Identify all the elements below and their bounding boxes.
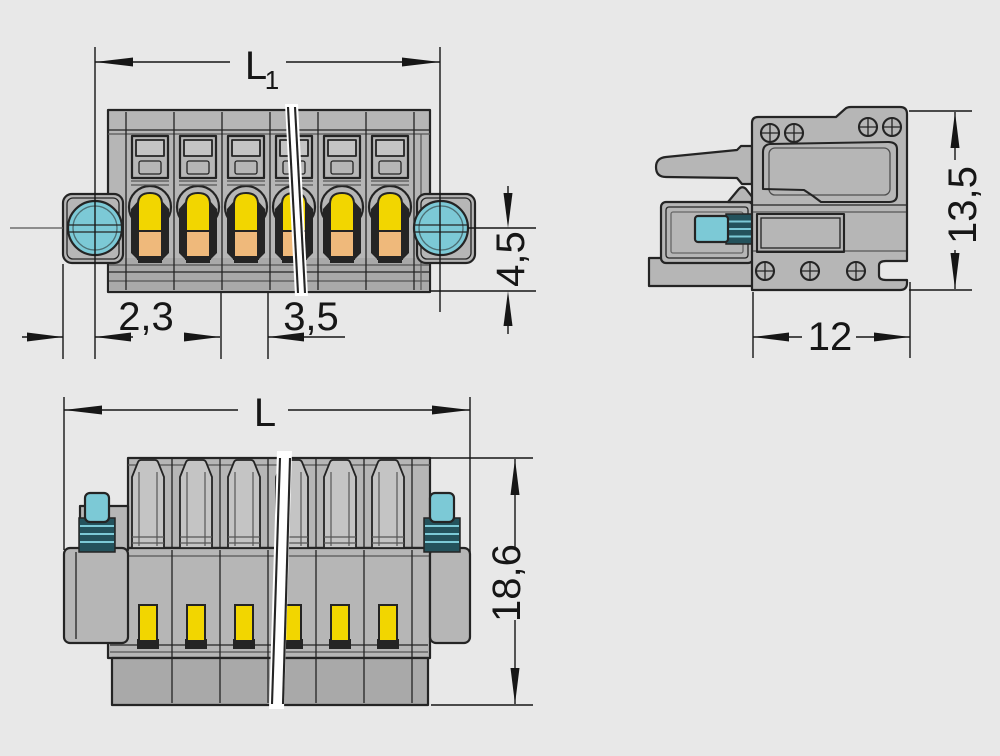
dim-13-5-label: 13,5 — [941, 166, 985, 244]
pin-housing — [132, 460, 164, 548]
arrow-right-icon — [27, 333, 63, 342]
clamp-jaw — [210, 201, 217, 260]
clamp-jaw — [179, 201, 186, 260]
dim-18-6-label: 18,6 — [485, 544, 529, 622]
dim-l1-subscript: 1 — [265, 65, 279, 95]
arrow-down-icon — [511, 668, 520, 704]
dim-13-5: 13,5 — [909, 111, 985, 290]
clamping-screw-side — [695, 214, 754, 244]
dim-l-label: L — [254, 391, 276, 435]
arrow-up-icon — [951, 112, 960, 148]
bottom-view: L 18,6 — [64, 391, 533, 709]
arrow-right-icon — [184, 333, 220, 342]
push-button — [376, 140, 404, 156]
dim-2-3-label: 2,3 — [118, 295, 174, 339]
cage-bottom — [330, 256, 354, 263]
clamp-jaw — [162, 201, 169, 260]
clamp-spring — [138, 229, 162, 259]
pin-housing — [372, 460, 404, 548]
clamp-jaw — [131, 201, 138, 260]
wire-lever — [378, 193, 402, 231]
side-view: 13,5 12 — [649, 107, 985, 359]
fixing-screw-right — [414, 201, 468, 255]
fixing-flange-right — [414, 194, 475, 263]
cage-bottom — [234, 256, 258, 263]
clamp-jaw — [275, 201, 282, 260]
housing-body — [752, 107, 907, 290]
cage-bottom — [186, 256, 210, 263]
terminal-pole — [225, 136, 267, 263]
pin-housing — [180, 460, 212, 548]
contact-window — [139, 605, 157, 641]
contact-window — [379, 605, 397, 641]
terminal-pole — [129, 136, 171, 263]
cage-bottom — [138, 256, 162, 263]
arrow-left-icon — [753, 333, 789, 342]
clamp-jaw — [227, 201, 234, 260]
screw-cross-icon — [859, 118, 878, 137]
front-view: L 1 2,3 3,5 — [10, 44, 536, 359]
push-button — [328, 140, 356, 156]
clamp-jaw — [371, 201, 378, 260]
dim-4-5-label: 4,5 — [489, 231, 533, 287]
dim-3-5: 3,5 — [184, 293, 345, 359]
screw-cross-icon — [847, 262, 866, 281]
wire-lever — [330, 193, 354, 231]
locking-lever — [656, 146, 752, 184]
push-button — [136, 140, 164, 156]
clamp-jaw — [258, 201, 265, 260]
clamp-spring — [378, 229, 402, 259]
clamp-spring — [234, 229, 258, 259]
clamp-jaw — [323, 201, 330, 260]
arrow-down-icon — [951, 253, 960, 289]
arrow-down-icon — [504, 193, 513, 228]
arrow-left-icon — [64, 406, 102, 415]
dim-3-5-label: 3,5 — [283, 295, 339, 339]
wire-lever — [234, 193, 258, 231]
clamp-spring — [330, 229, 354, 259]
latch-bump — [728, 187, 753, 202]
push-button — [184, 140, 212, 156]
push-button — [232, 140, 260, 156]
contact-window — [187, 605, 205, 641]
arrow-right-icon — [402, 58, 440, 67]
wire-lever — [138, 193, 162, 231]
fixing-flange-left — [64, 548, 128, 643]
wire-lever — [186, 193, 210, 231]
fixing-screw-right — [424, 493, 460, 552]
arrow-right-icon — [874, 333, 910, 342]
fixing-screw-left — [79, 493, 115, 552]
contact-window — [331, 605, 349, 641]
cage-bottom — [378, 256, 402, 263]
pin-housing — [324, 460, 356, 548]
fixing-flange-left — [63, 194, 123, 263]
pin-housing — [228, 460, 260, 548]
terminal-pole — [321, 136, 363, 263]
arrow-right-icon — [432, 406, 470, 415]
dim-12-label: 12 — [808, 315, 853, 359]
screw-cross-icon — [756, 262, 775, 281]
clamp-spring — [186, 229, 210, 259]
arrow-up-icon — [511, 459, 520, 495]
screw-cross-icon — [761, 124, 780, 143]
contact-window — [235, 605, 253, 641]
screw-cross-icon — [801, 262, 820, 281]
screw-cross-icon — [883, 118, 902, 137]
dim-12: 12 — [753, 282, 910, 359]
clamp-jaw — [354, 201, 361, 260]
connector-dimension-drawing: L 1 2,3 3,5 — [0, 0, 1000, 756]
screw-cross-icon — [785, 124, 804, 143]
terminal-pole — [369, 136, 411, 263]
arrow-up-icon — [504, 291, 513, 326]
fixing-flange-right — [430, 548, 470, 643]
arrow-left-icon — [95, 58, 133, 67]
terminal-pole — [177, 136, 219, 263]
clamp-jaw — [402, 201, 409, 260]
clamp-jaw — [306, 201, 313, 260]
